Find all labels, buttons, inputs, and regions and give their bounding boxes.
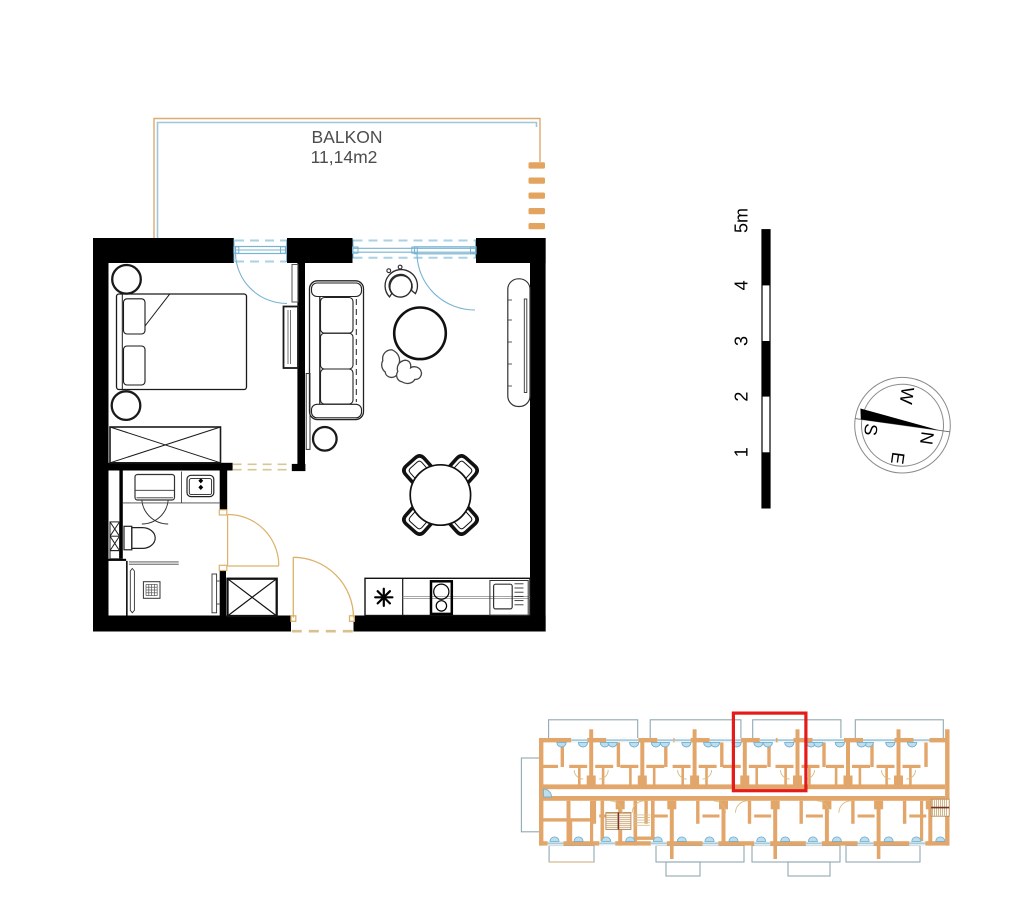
- svg-text:W: W: [896, 386, 918, 406]
- svg-text:2: 2: [732, 392, 752, 402]
- svg-text:5m: 5m: [732, 208, 752, 233]
- svg-text:1: 1: [732, 447, 752, 457]
- svg-text:11,14m2: 11,14m2: [311, 147, 378, 167]
- svg-text:4: 4: [732, 280, 752, 290]
- svg-text:BALKON: BALKON: [312, 127, 383, 147]
- svg-text:N: N: [916, 430, 938, 446]
- svg-text:3: 3: [732, 336, 752, 346]
